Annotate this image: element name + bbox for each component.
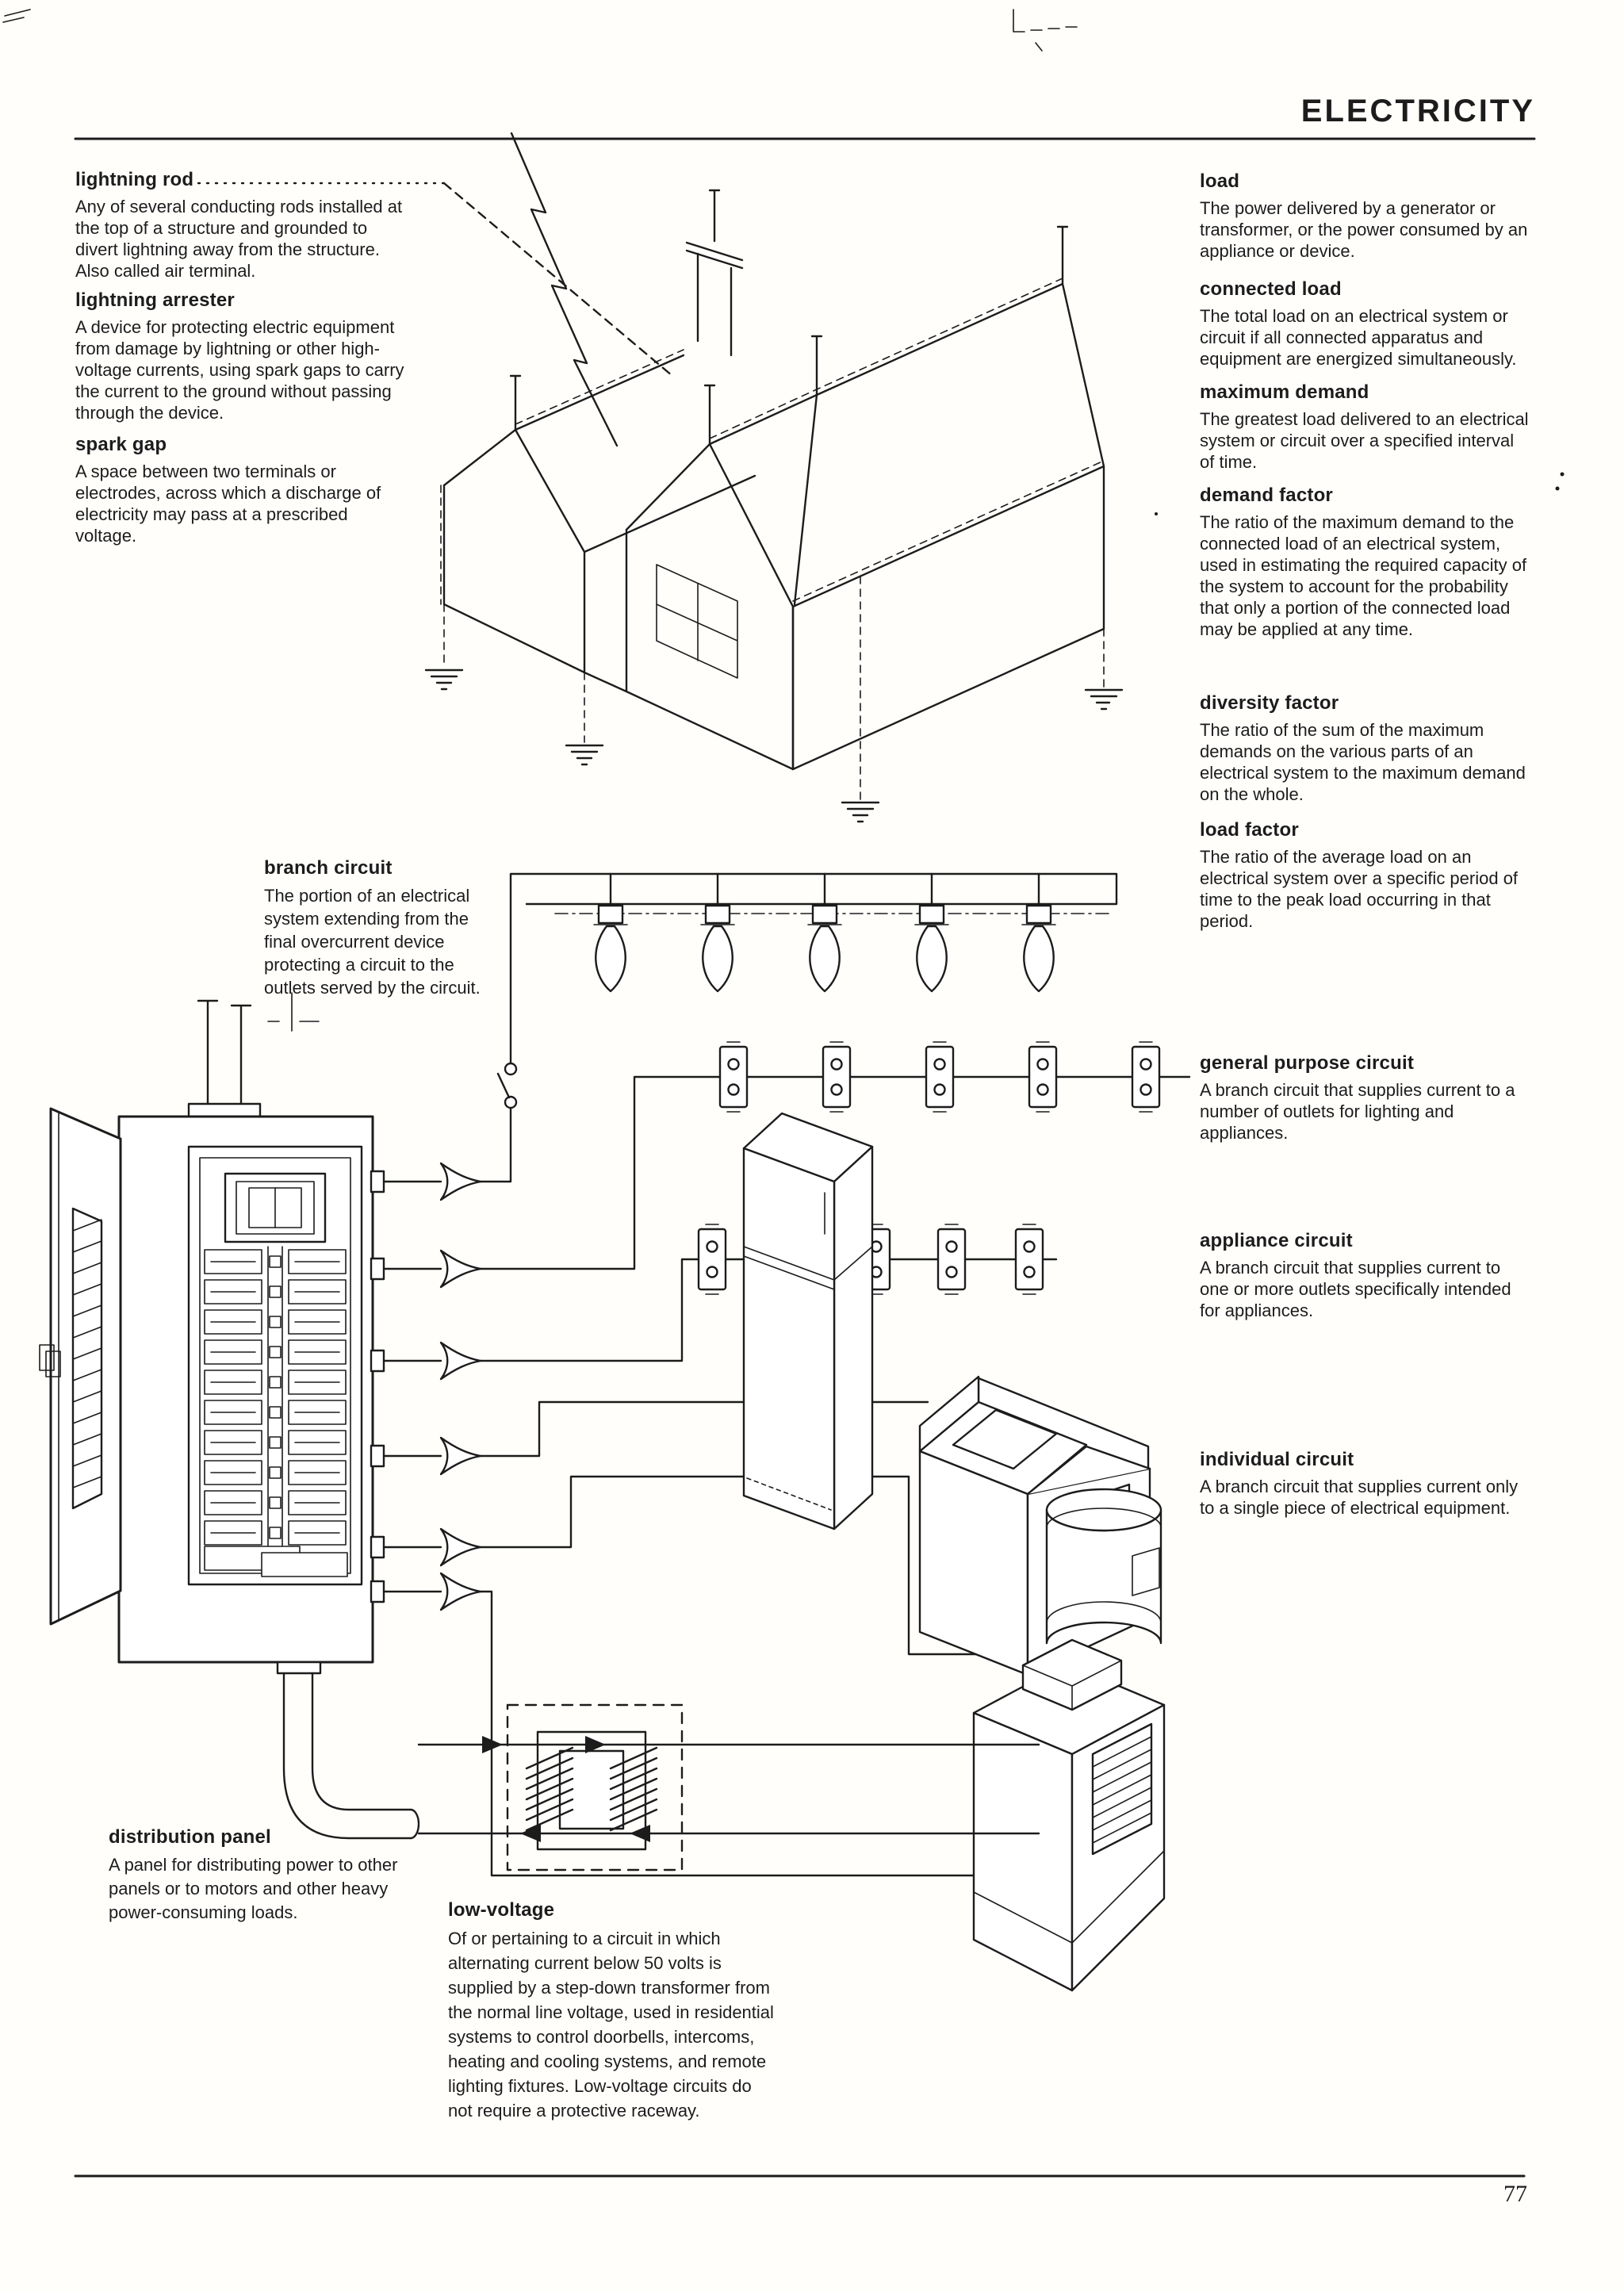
term-body: Any of several conducting rods installed… (75, 196, 448, 282)
term-appliance-circuit: appliance circuit A branch circuit that … (1200, 1229, 1588, 1321)
term-title: general purpose circuit (1200, 1052, 1588, 1075)
term-title: branch circuit (264, 856, 510, 880)
water-heater-illustration (1047, 1489, 1161, 1643)
term-title: distribution panel (109, 1826, 458, 1849)
term-title: lightning arrester (75, 289, 448, 312)
term-body: The total load on an electrical system o… (1200, 305, 1588, 370)
house-illustration (426, 190, 1122, 822)
term-diversity-factor: diversity factor The ratio of the sum of… (1200, 692, 1588, 805)
term-title: connected load (1200, 278, 1588, 301)
term-title: appliance circuit (1200, 1229, 1588, 1253)
term-body: A branch circuit that supplies current t… (1200, 1079, 1588, 1144)
term-general-purpose-circuit: general purpose circuit A branch circuit… (1200, 1052, 1588, 1144)
term-body: Of or pertaining to a circuit in which a… (448, 1926, 829, 2123)
term-body: A space between two terminals or electro… (75, 461, 448, 546)
term-body: The power delivered by a generator or tr… (1200, 197, 1588, 262)
lightning-bolt-icon (511, 133, 617, 446)
term-body: The ratio of the average load on an elec… (1200, 846, 1588, 932)
term-body: A device for protecting electric equipme… (75, 316, 448, 423)
term-body: The portion of an electrical system exte… (264, 884, 510, 999)
term-load-factor: load factor The ratio of the average loa… (1200, 818, 1588, 932)
term-body: A panel for distributing power to other … (109, 1853, 458, 1925)
refrigerator-illustration (744, 1113, 872, 1529)
branch-arrow-icons (371, 1163, 481, 1610)
term-title: load factor (1200, 818, 1588, 842)
ground-symbol (426, 670, 1122, 822)
term-body: A branch circuit that supplies current o… (1200, 1476, 1588, 1519)
term-body: The greatest load delivered to an electr… (1200, 408, 1588, 473)
term-title: diversity factor (1200, 692, 1588, 715)
term-maximum-demand: maximum demand The greatest load deliver… (1200, 381, 1588, 473)
lamp-icons (594, 874, 1055, 991)
term-title: lightning rod (75, 168, 448, 192)
term-title: spark gap (75, 433, 448, 457)
term-title: low-voltage (448, 1898, 829, 1922)
term-body: The ratio of the sum of the maximum dema… (1200, 719, 1588, 805)
furnace-illustration (974, 1640, 1164, 1990)
transformer-illustration (419, 1705, 1039, 1870)
term-branch-circuit: branch circuit The portion of an electri… (264, 856, 510, 999)
page-number: 77 (1459, 2181, 1527, 2208)
term-title: demand factor (1200, 484, 1588, 508)
term-spark-gap: spark gap A space between two terminals … (75, 433, 448, 546)
dictionary-page: ELECTRICITY 77 lightning rod Any of seve… (0, 0, 1624, 2291)
term-distribution-panel: distribution panel A panel for distribut… (109, 1826, 458, 1925)
term-title: individual circuit (1200, 1448, 1588, 1472)
term-body: The ratio of the maximum demand to the c… (1200, 511, 1588, 640)
panelboard-illustration (40, 1001, 481, 1838)
term-connected-load: connected load The total load on an elec… (1200, 278, 1588, 370)
term-load: load The power delivered by a generator … (1200, 170, 1588, 262)
term-title: maximum demand (1200, 381, 1588, 404)
term-demand-factor: demand factor The ratio of the maximum d… (1200, 484, 1588, 640)
term-individual-circuit: individual circuit A branch circuit that… (1200, 1448, 1588, 1519)
term-lightning-rod: lightning rod Any of several conducting … (75, 168, 448, 282)
term-body: A branch circuit that supplies current t… (1200, 1257, 1588, 1321)
page-title: ELECTRICITY (1150, 94, 1535, 129)
term-title: load (1200, 170, 1588, 193)
term-lightning-arrester: lightning arrester A device for protecti… (75, 289, 448, 423)
term-low-voltage: low-voltage Of or pertaining to a circui… (448, 1898, 829, 2123)
